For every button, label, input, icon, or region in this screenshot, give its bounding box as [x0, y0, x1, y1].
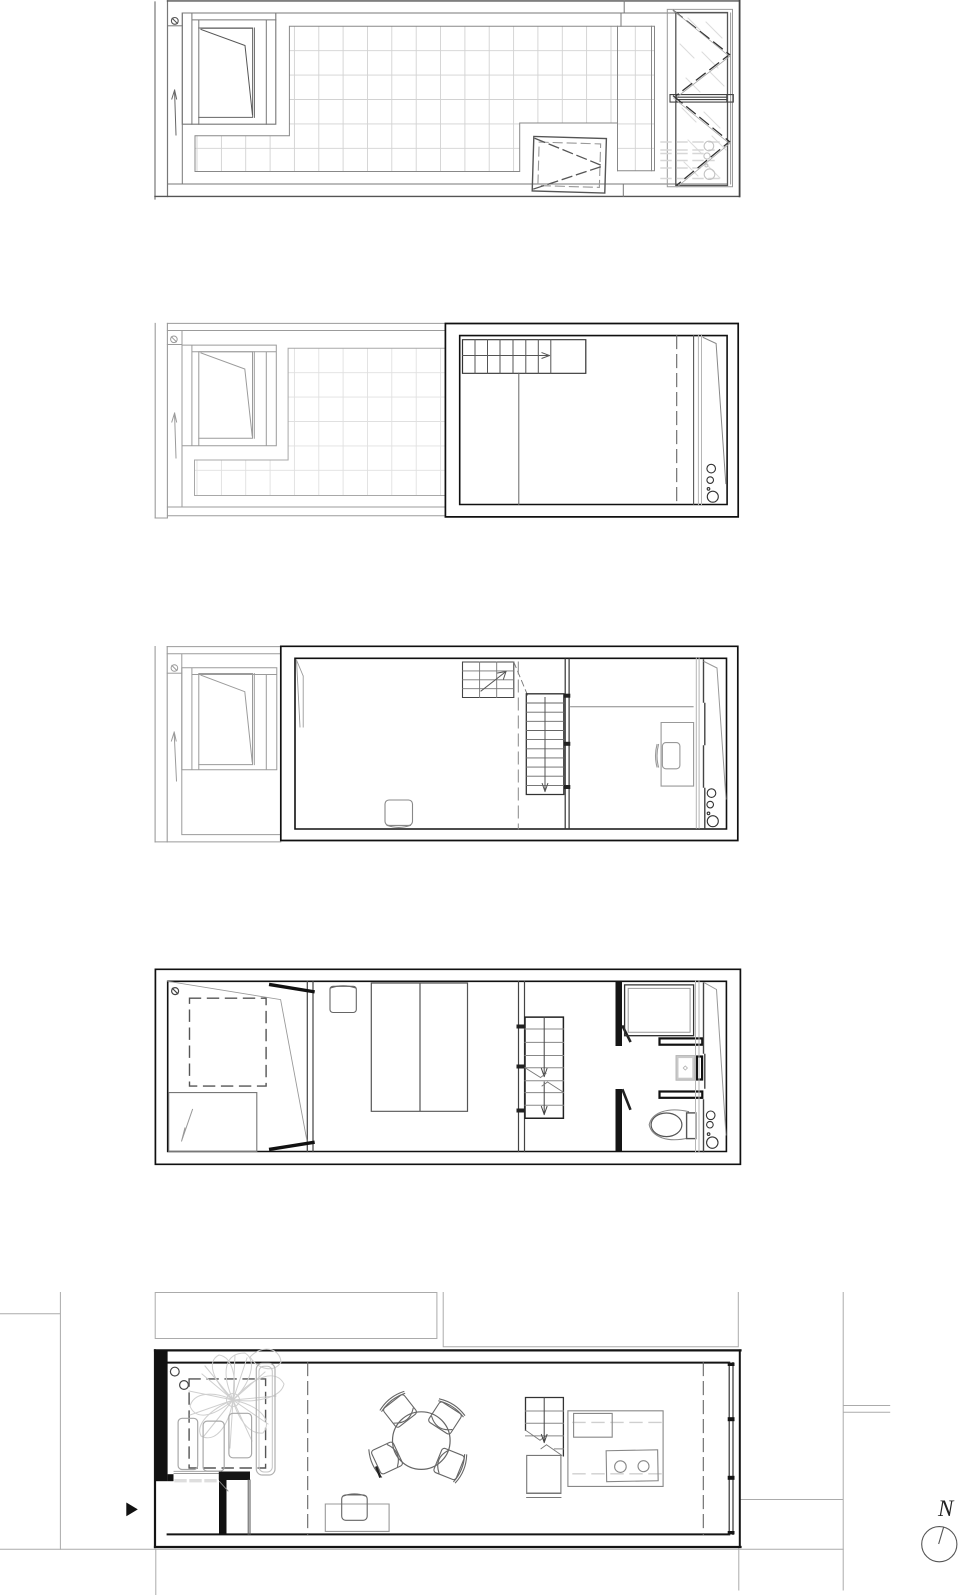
svg-text:N: N [937, 1496, 955, 1521]
